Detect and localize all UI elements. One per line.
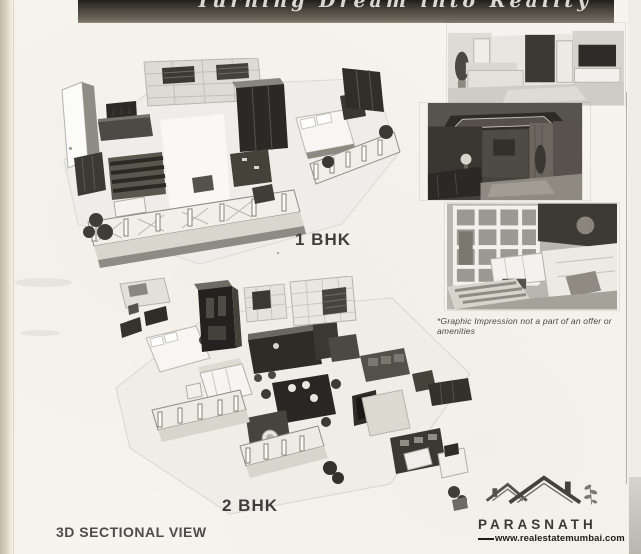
header-banner: Turning Dream into Reality bbox=[78, 0, 614, 23]
floorplan-2bhk bbox=[58, 276, 478, 526]
photo-disclaimer: *Graphic Impression not a part of an off… bbox=[437, 316, 627, 336]
website-row: www.realestatemumbai.com bbox=[478, 533, 626, 544]
scanned-brochure-page: Turning Dream into Reality bbox=[0, 0, 641, 554]
scan-speck bbox=[277, 252, 279, 254]
page-right-strip bbox=[628, 0, 641, 554]
brand-name: PARASNATH bbox=[478, 517, 626, 532]
label-2bhk: 2 BHK bbox=[222, 496, 278, 516]
floorplan-2bhk-illustration bbox=[58, 276, 478, 521]
scanner-corner-shadow bbox=[629, 477, 641, 554]
website-url: www.realestatemumbai.com bbox=[495, 533, 625, 544]
tile-wall-2bhk bbox=[290, 276, 356, 326]
scan-smudge bbox=[14, 278, 72, 287]
banner-tagline: Turning Dream into Reality bbox=[196, 0, 592, 12]
living-room-photo-illustration bbox=[447, 23, 625, 105]
photo-living-room bbox=[447, 23, 625, 105]
logo-dash-rule bbox=[478, 538, 494, 540]
section-title: 3D SECTIONAL VIEW bbox=[56, 524, 207, 540]
scan-smudge bbox=[20, 330, 60, 336]
bedroom-photo-illustration bbox=[447, 203, 617, 310]
parasnath-logo: PARASNATH www.realestatemumbai.com bbox=[478, 472, 626, 544]
page-left-edge bbox=[0, 0, 14, 554]
leaf-icon bbox=[584, 484, 598, 505]
house-roofs-icon bbox=[478, 472, 608, 514]
scan-speck bbox=[69, 147, 72, 150]
label-1bhk: 1 BHK bbox=[295, 230, 351, 250]
photo-lounge bbox=[420, 103, 590, 200]
lounge-photo-illustration bbox=[420, 103, 590, 200]
floorplan-1bhk bbox=[42, 58, 402, 285]
bedroom-2bhk bbox=[120, 303, 210, 372]
photo-bedroom bbox=[445, 203, 619, 310]
page-right-fold-line bbox=[626, 92, 627, 484]
